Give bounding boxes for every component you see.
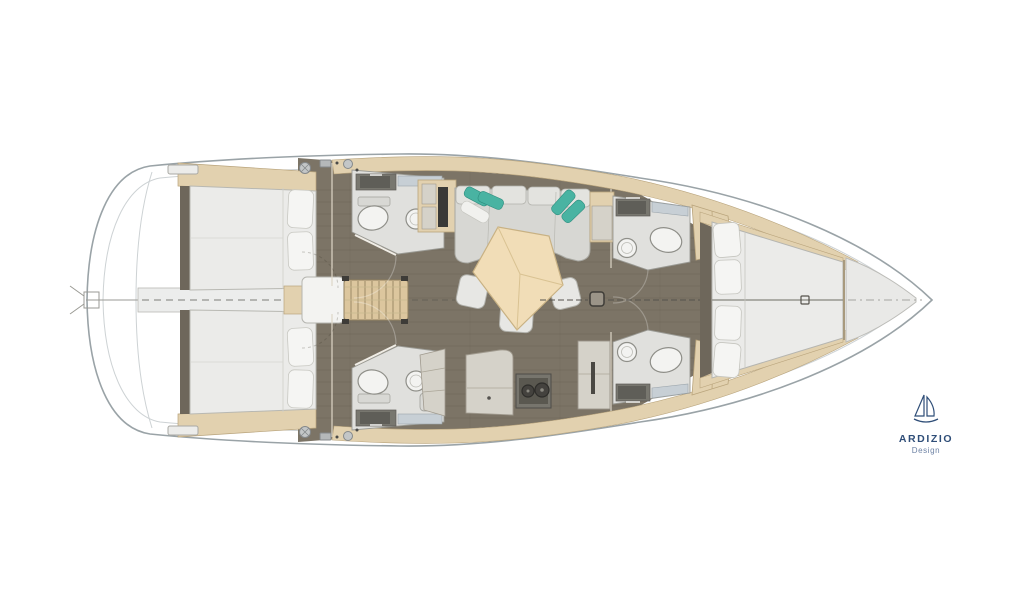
handrail bbox=[342, 276, 349, 281]
salon-cabinet-right bbox=[590, 192, 614, 242]
cabinet-knob bbox=[487, 396, 491, 400]
bed-side-board bbox=[180, 186, 190, 290]
bed-side-board bbox=[180, 310, 190, 414]
deck-locker bbox=[168, 426, 198, 435]
toilet-tank bbox=[358, 394, 390, 403]
forward-head-port bbox=[613, 196, 690, 270]
handrail bbox=[401, 319, 408, 324]
step-box bbox=[284, 286, 302, 314]
toilet-tank bbox=[358, 197, 390, 206]
winch-icon bbox=[344, 160, 353, 169]
bed-foot-board bbox=[700, 222, 712, 378]
companionway bbox=[284, 276, 408, 324]
fridge-handle bbox=[591, 362, 595, 394]
aft-corridor bbox=[138, 288, 302, 312]
deck-locker bbox=[168, 165, 198, 174]
logo-subtitle-text: Design bbox=[893, 446, 959, 455]
aft-cabin-port bbox=[178, 163, 316, 290]
stove-icon bbox=[516, 374, 551, 408]
counter-sink-icon bbox=[360, 412, 390, 424]
round-sink-icon bbox=[618, 343, 637, 362]
fridge bbox=[578, 341, 610, 409]
tv-screen bbox=[438, 187, 448, 227]
clutch-icon bbox=[320, 160, 331, 167]
yacht-floor-plan-drawing bbox=[0, 0, 1024, 600]
back-cushion bbox=[528, 187, 560, 205]
pillow bbox=[287, 370, 313, 409]
pillow bbox=[714, 260, 741, 295]
pillow bbox=[287, 232, 313, 271]
mirror-strip bbox=[398, 414, 442, 424]
pillow bbox=[287, 189, 314, 228]
salon-cabinet-left bbox=[418, 180, 456, 232]
pillow bbox=[714, 306, 741, 341]
galley-counter-left bbox=[420, 349, 445, 416]
counter-sink-icon bbox=[618, 201, 646, 214]
handrail bbox=[342, 319, 349, 324]
yacht-floor-plan-page: ARDIZIO Design bbox=[0, 0, 1024, 600]
pillow bbox=[713, 342, 742, 378]
galley-counter-main bbox=[466, 350, 513, 415]
sailboat-logo-icon bbox=[911, 392, 941, 426]
engine-box bbox=[302, 277, 344, 323]
aft-cabin-starboard bbox=[178, 310, 316, 437]
logo-brand-text: ARDIZIO bbox=[893, 433, 959, 445]
mast-post-icon bbox=[590, 292, 604, 306]
clutch-icon bbox=[320, 433, 331, 440]
counter-sink-icon bbox=[360, 176, 390, 188]
round-sink-icon bbox=[618, 239, 637, 258]
winch-icon bbox=[344, 432, 353, 441]
handrail bbox=[401, 276, 408, 281]
companionway-stairs bbox=[342, 276, 408, 324]
counter-sink-icon bbox=[618, 386, 646, 399]
ardizio-logo: ARDIZIO Design bbox=[893, 392, 959, 455]
pillow bbox=[713, 222, 742, 258]
forward-head-starboard bbox=[613, 330, 690, 404]
